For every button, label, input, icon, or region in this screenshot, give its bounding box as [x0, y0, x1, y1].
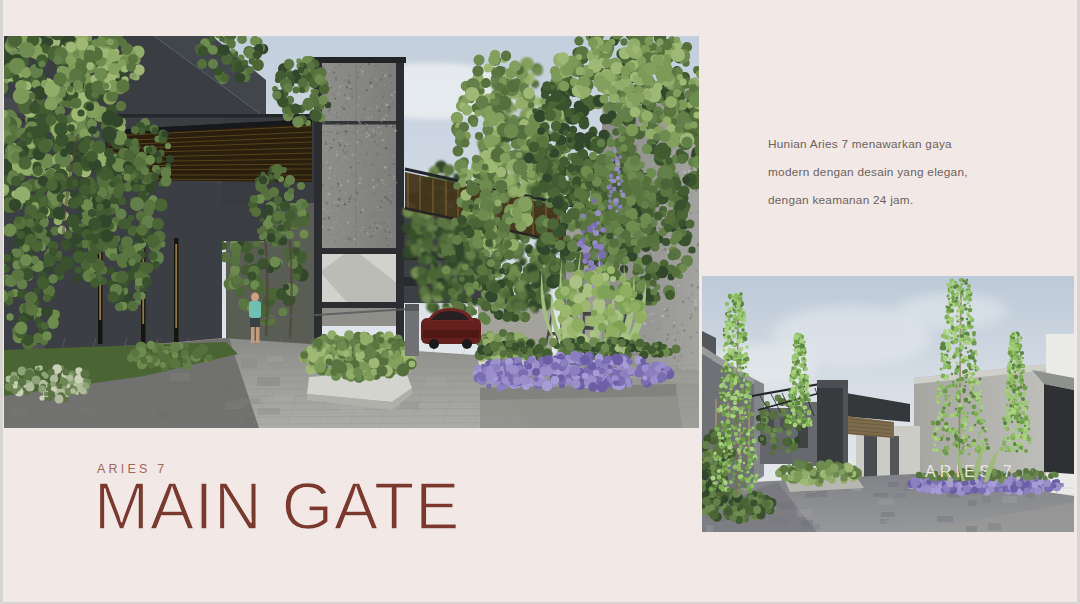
svg-text:ARIES 7: ARIES 7: [925, 463, 1016, 480]
